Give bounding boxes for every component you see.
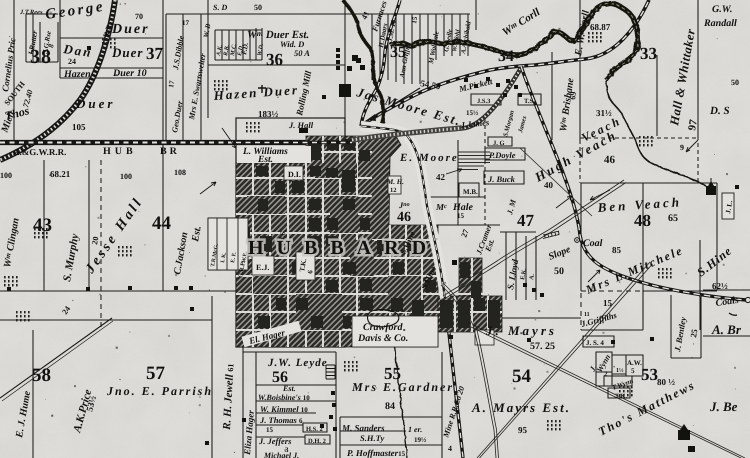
svg-text:1 er.: 1 er. xyxy=(408,425,422,434)
svg-text:5: 5 xyxy=(631,367,635,375)
svg-text:33: 33 xyxy=(640,44,657,63)
svg-text:12: 12 xyxy=(390,187,397,194)
svg-text:48: 48 xyxy=(634,211,651,230)
svg-text:15: 15 xyxy=(603,298,613,308)
svg-text:Est.: Est. xyxy=(282,384,296,393)
svg-text:M.B.: M.B. xyxy=(463,188,478,196)
svg-text:70: 70 xyxy=(135,12,143,21)
svg-text:D.I.: D.I. xyxy=(288,170,301,179)
svg-text:J. G: J. G xyxy=(493,140,505,147)
svg-text:108: 108 xyxy=(174,168,186,177)
svg-text:54: 54 xyxy=(512,366,532,387)
svg-text:85: 85 xyxy=(612,245,622,255)
svg-text:J. Be: J. Be xyxy=(709,399,738,414)
svg-text:Randall: Randall xyxy=(703,18,737,29)
svg-text:58: 58 xyxy=(32,365,51,386)
svg-text:A.W.: A.W. xyxy=(627,359,642,367)
svg-text:95: 95 xyxy=(518,425,528,435)
svg-text:E.J.: E.J. xyxy=(256,263,269,272)
svg-text:9: 9 xyxy=(680,143,684,152)
svg-text:Davis & Co.: Davis & Co. xyxy=(357,333,408,344)
svg-text:65: 65 xyxy=(668,213,678,224)
svg-text:53: 53 xyxy=(641,365,658,384)
svg-text:47: 47 xyxy=(517,211,535,230)
svg-text:T.S.: T.S. xyxy=(524,98,535,105)
svg-text:Jno. E. Parrish: Jno. E. Parrish xyxy=(106,384,213,398)
svg-text:W. Kimmel 10: W. Kimmel 10 xyxy=(260,404,308,414)
svg-text:J.W. Leyde: J.W. Leyde xyxy=(267,357,328,369)
svg-text:A.&G.W.R.R.: A.&G.W.R.R. xyxy=(13,147,66,157)
svg-text:J. Mayrs: J. Mayrs xyxy=(485,323,557,338)
svg-text:100: 100 xyxy=(120,172,132,181)
svg-text:50: 50 xyxy=(731,78,739,87)
svg-text:Duer: Duer xyxy=(111,45,143,60)
svg-text:P. Hoffmaster15: P. Hoffmaster15 xyxy=(347,448,406,458)
svg-text:J. Jeffers: J. Jeffers xyxy=(258,436,292,446)
svg-text:50: 50 xyxy=(554,266,564,277)
svg-text:80 ½: 80 ½ xyxy=(657,377,675,387)
svg-text:S.H.Ty: S.H.Ty xyxy=(360,433,384,443)
svg-text:A. Mayrs Est.: A. Mayrs Est. xyxy=(471,400,571,415)
svg-text:69: 69 xyxy=(568,91,578,100)
svg-text:Duer: Duer xyxy=(111,22,150,37)
svg-text:4: 4 xyxy=(448,444,452,453)
svg-text:50 A: 50 A xyxy=(294,48,310,58)
svg-text:1½: 1½ xyxy=(616,368,624,374)
svg-text:BR: BR xyxy=(160,146,180,157)
svg-text:J. S. 4: J. S. 4 xyxy=(586,339,604,347)
svg-text:40: 40 xyxy=(544,180,554,190)
svg-text:S. D: S. D xyxy=(213,3,227,12)
svg-text:2: 2 xyxy=(604,370,608,378)
svg-text:E. Moore: E. Moore xyxy=(399,152,459,164)
svg-text:G.W.: G.W. xyxy=(712,4,732,15)
svg-text:57: 57 xyxy=(146,363,166,384)
svg-text:44: 44 xyxy=(152,213,172,234)
svg-text:36: 36 xyxy=(266,50,283,69)
svg-text:Michael J.: Michael J. xyxy=(263,451,299,458)
svg-text:17: 17 xyxy=(182,19,190,27)
svg-text:46: 46 xyxy=(604,154,616,166)
svg-text:T.K.: T.K. xyxy=(615,393,628,400)
svg-text:J. Buck: J. Buck xyxy=(487,174,516,184)
svg-text:J.S.3: J.S.3 xyxy=(477,98,491,105)
svg-text:20: 20 xyxy=(90,236,100,245)
svg-text:46: 46 xyxy=(397,210,411,225)
svg-text:Hazen: Hazen xyxy=(63,69,91,80)
svg-text:15: 15 xyxy=(457,212,465,220)
svg-text:D.H. 2: D.H. 2 xyxy=(308,438,326,445)
svg-text:62½: 62½ xyxy=(712,281,728,291)
svg-text:19½: 19½ xyxy=(414,436,426,444)
svg-text:Duer 10: Duer 10 xyxy=(112,68,147,79)
svg-text:31½: 31½ xyxy=(596,108,612,118)
svg-text:68.21: 68.21 xyxy=(50,169,71,179)
svg-text:105: 105 xyxy=(72,122,86,132)
svg-text:D. S: D. S xyxy=(709,105,730,117)
svg-text:Mrs E.Gardner: Mrs E.Gardner xyxy=(351,380,454,394)
svg-text:J.T.Rees: J.T.Rees xyxy=(19,9,43,16)
svg-text:P.Doyle: P.Doyle xyxy=(489,150,516,160)
svg-text:J. Thomas 6: J. Thomas 6 xyxy=(259,415,303,425)
svg-text:15½: 15½ xyxy=(466,109,478,117)
svg-text:55: 55 xyxy=(384,364,401,383)
svg-text:100: 100 xyxy=(0,171,12,180)
svg-text:M. Sanders: M. Sanders xyxy=(341,423,385,433)
svg-text:24: 24 xyxy=(68,57,76,66)
svg-text:Est.: Est. xyxy=(257,155,273,165)
svg-text:50: 50 xyxy=(254,3,262,12)
svg-text:Duer: Duer xyxy=(75,96,115,111)
svg-text:68.87: 68.87 xyxy=(590,22,611,32)
svg-text:Coal: Coal xyxy=(583,238,603,249)
svg-text:M. H.: M. H. xyxy=(386,178,404,186)
svg-text:42: 42 xyxy=(436,172,446,182)
svg-text:183½: 183½ xyxy=(258,109,279,119)
svg-text:11: 11 xyxy=(584,312,590,318)
svg-text:34: 34 xyxy=(498,48,514,65)
svg-text:57. 25: 57. 25 xyxy=(530,341,555,352)
svg-text:Crawford: Crawford xyxy=(363,322,403,333)
svg-text:15: 15 xyxy=(266,426,274,434)
svg-text:A. Br: A. Br xyxy=(711,322,742,337)
svg-text:W.Boisbine's 10: W.Boisbine's 10 xyxy=(258,393,310,402)
svg-text:25: 25 xyxy=(688,328,699,338)
svg-text:37: 37 xyxy=(146,44,164,63)
svg-text:38: 38 xyxy=(30,46,52,68)
svg-text:HUB: HUB xyxy=(103,146,137,157)
svg-text:84: 84 xyxy=(385,401,395,412)
